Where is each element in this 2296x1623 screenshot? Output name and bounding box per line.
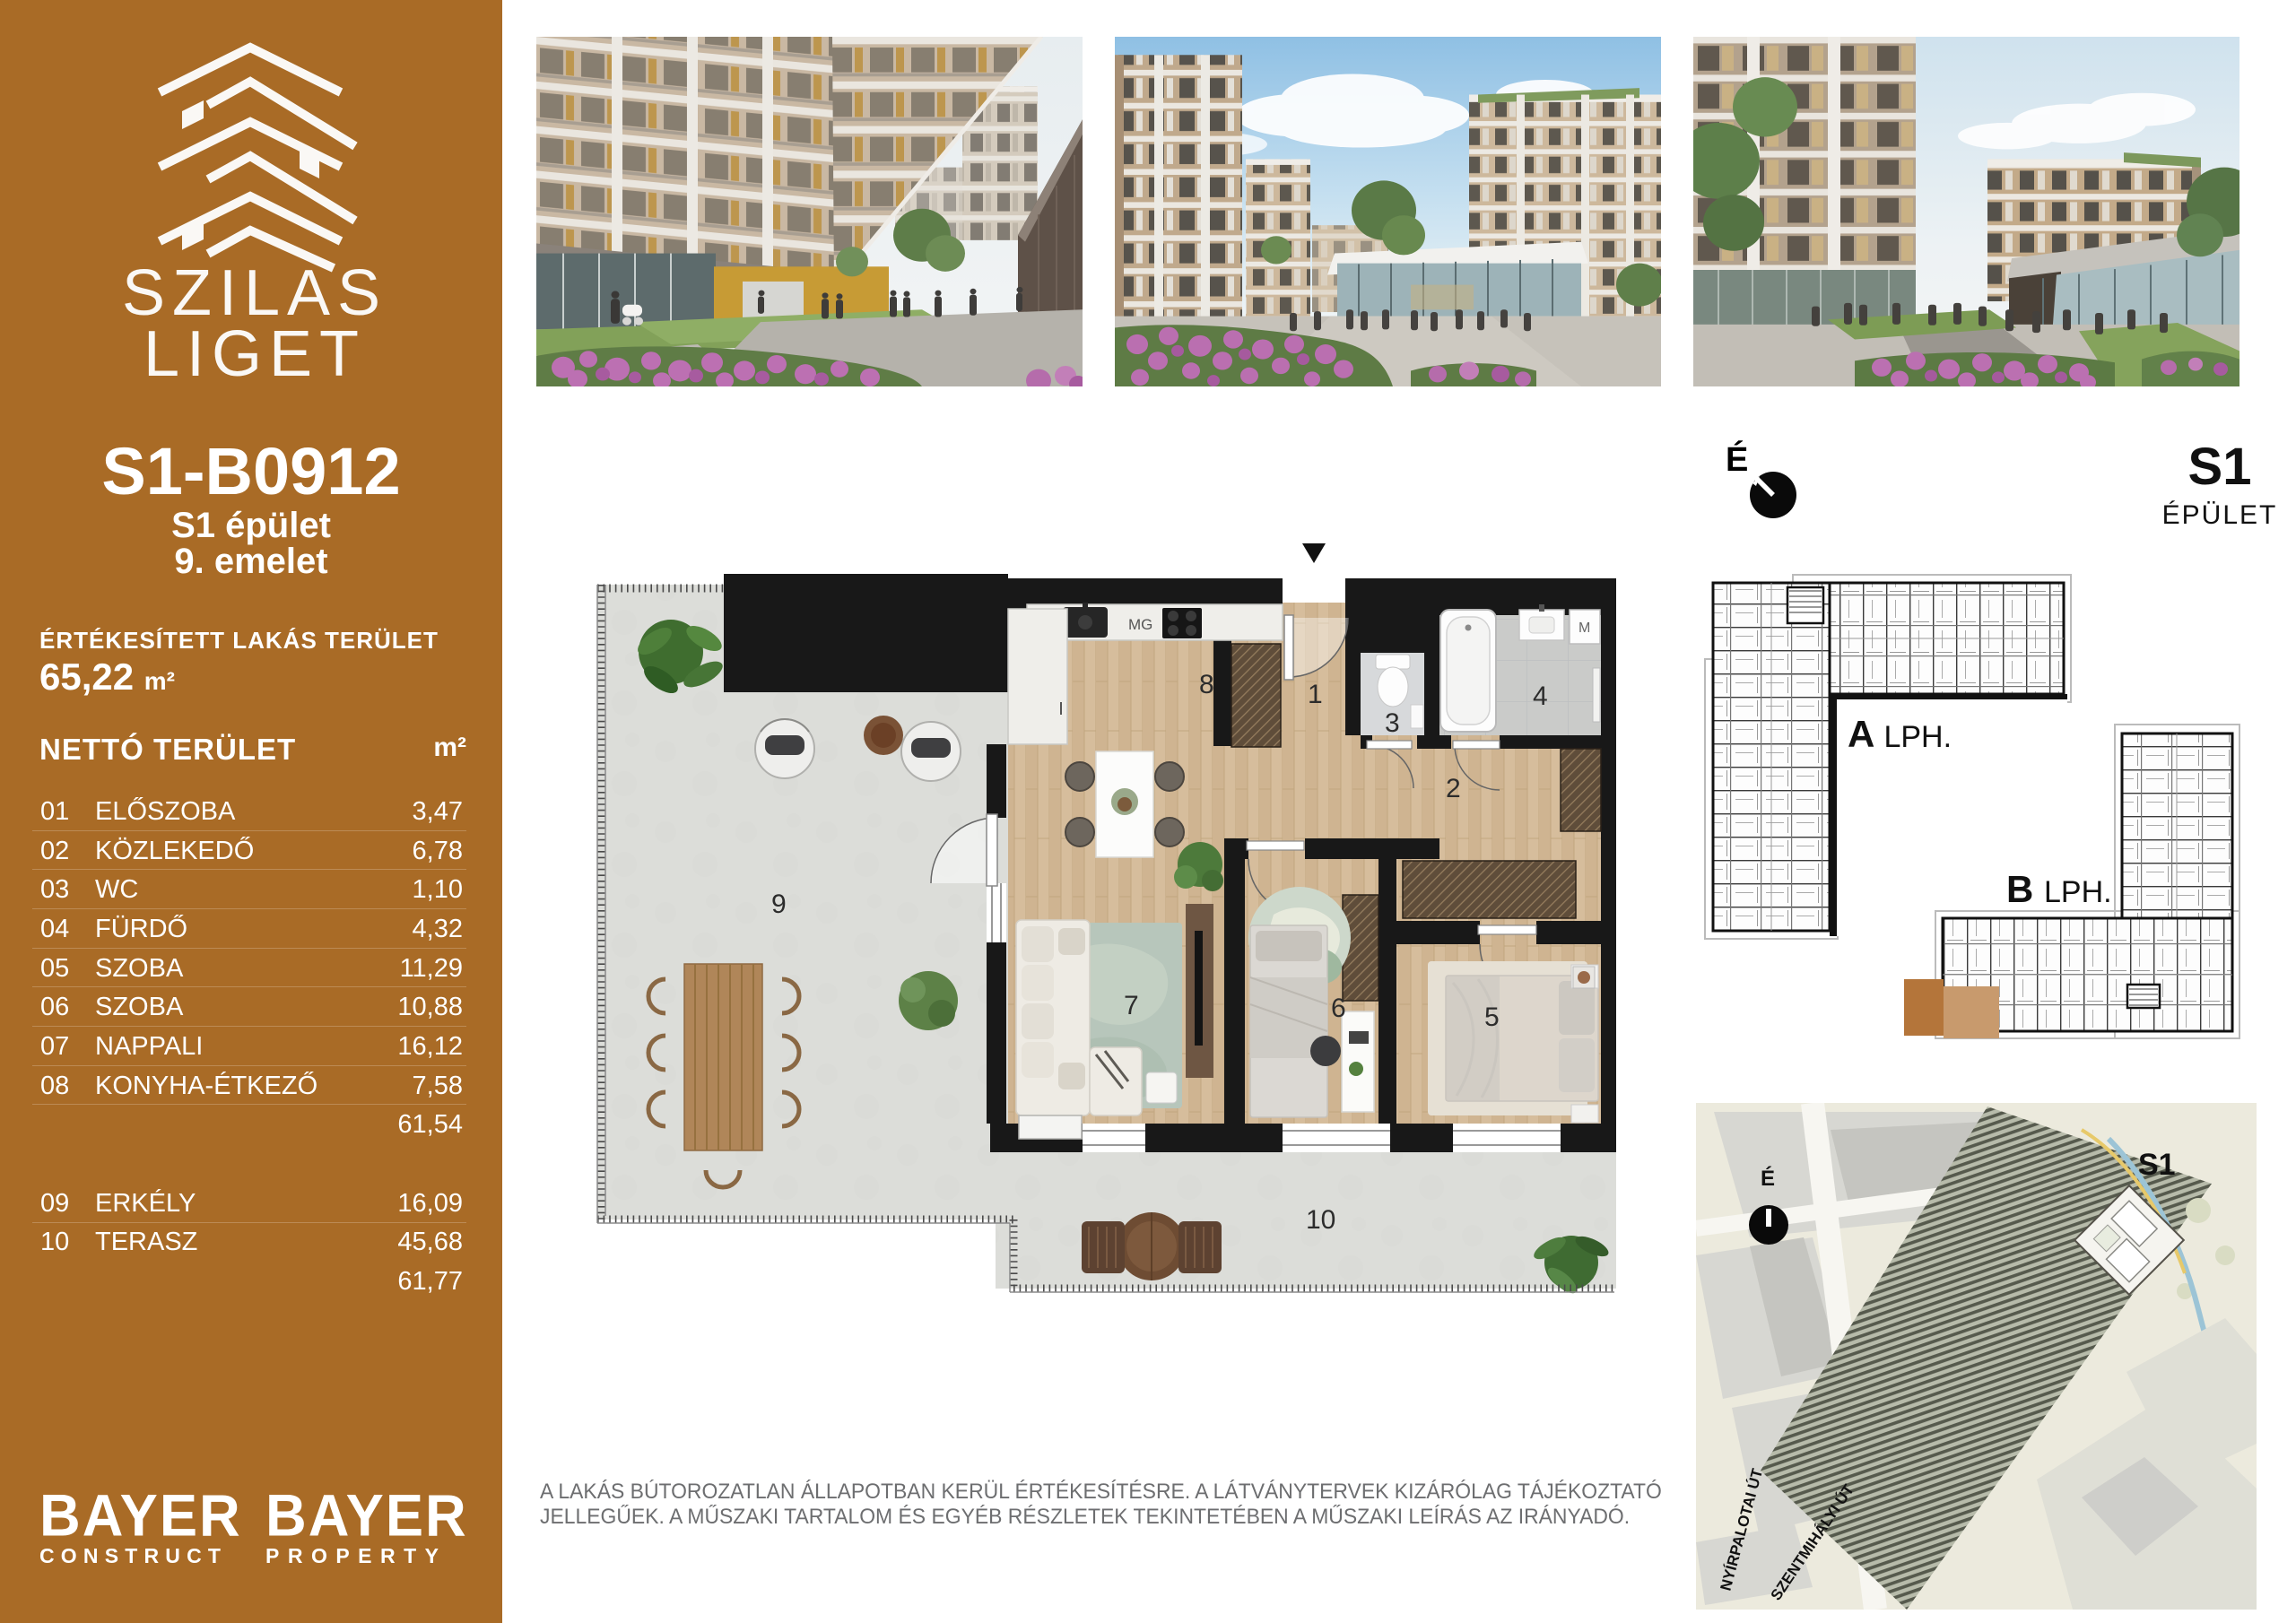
svg-text:É: É: [1761, 1166, 1775, 1191]
svg-text:1: 1: [1308, 680, 1323, 709]
svg-text:9: 9: [771, 890, 787, 919]
svg-text:5: 5: [1484, 1002, 1500, 1032]
svg-text:7: 7: [1124, 991, 1139, 1020]
svg-text:M: M: [1578, 621, 1590, 636]
svg-text:3: 3: [1385, 708, 1400, 738]
svg-text:S1: S1: [2138, 1148, 2176, 1182]
svg-text:4: 4: [1533, 681, 1548, 711]
svg-text:6: 6: [1331, 994, 1346, 1023]
svg-text:2: 2: [1446, 774, 1461, 803]
svg-text:8: 8: [1199, 670, 1214, 699]
svg-text:10: 10: [1306, 1205, 1335, 1235]
svg-text:MG: MG: [1128, 616, 1152, 633]
